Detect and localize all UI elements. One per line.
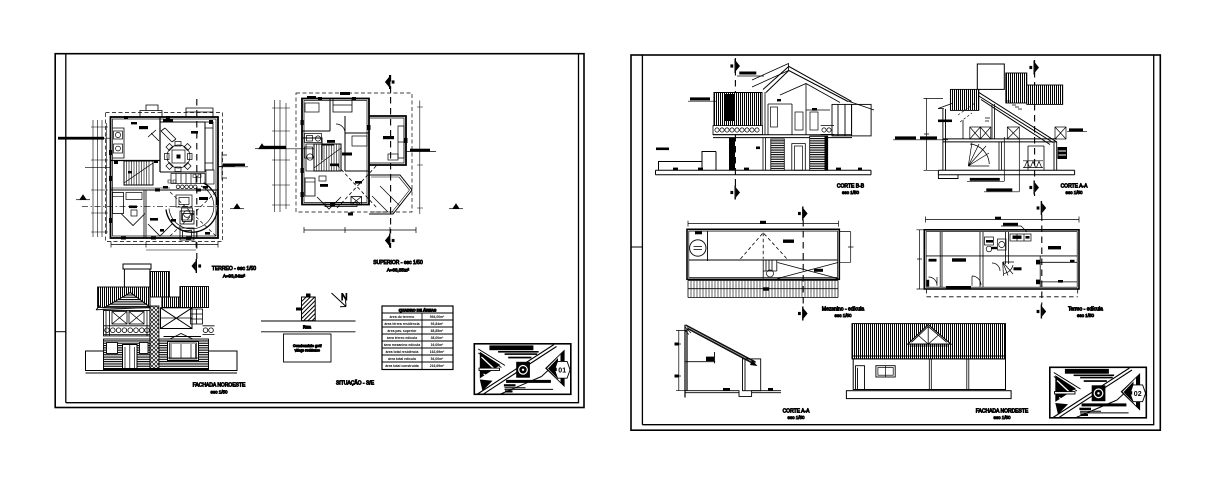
svg-text:área térreo edícula: área térreo edícula [387, 336, 417, 340]
svg-text:village residence: village residence [295, 349, 320, 353]
svg-text:esc 1/50: esc 1/50 [993, 415, 1011, 420]
svg-text:área total edícula: área total edícula [388, 357, 416, 361]
svg-text:área térrea residência: área térrea residência [384, 322, 419, 326]
svg-text:N: N [341, 292, 348, 302]
svg-text:esc 1/50: esc 1/50 [842, 190, 860, 195]
svg-text:Terreo - edícula: Terreo - edícula [1068, 307, 1103, 313]
svg-text:216,69m²: 216,69m² [430, 364, 445, 368]
svg-text:A=68,85m²: A=68,85m² [387, 268, 410, 273]
svg-text:QUADRO DE ÁREAS: QUADRO DE ÁREAS [399, 308, 437, 313]
svg-text:esc 1/50: esc 1/50 [210, 390, 228, 395]
svg-text:Mezanino - edícula: Mezanino - edícula [822, 307, 864, 313]
svg-text:68,85m²: 68,85m² [431, 329, 444, 333]
svg-text:esc 1/50: esc 1/50 [834, 313, 852, 318]
svg-text:FACHADA NORDESTE: FACHADA NORDESTE [976, 409, 1029, 415]
svg-text:esc 1/50: esc 1/50 [1065, 190, 1083, 195]
svg-text:Condomínio golf: Condomínio golf [293, 344, 322, 348]
svg-text:594,00m²: 594,00m² [430, 315, 445, 319]
svg-text:A=93,84m²: A=93,84m² [223, 274, 246, 279]
svg-text:01: 01 [558, 368, 566, 375]
svg-text:162,69m²: 162,69m² [430, 350, 445, 354]
svg-text:esc 1/50: esc 1/50 [787, 415, 805, 420]
svg-text:área pav. superior: área pav. superior [388, 329, 418, 333]
svg-text:16,00m²: 16,00m² [431, 343, 444, 347]
svg-text:CORTE B-B: CORTE B-B [837, 184, 865, 190]
svg-text:esc 1/50: esc 1/50 [1077, 313, 1095, 318]
svg-text:área total residência: área total residência [386, 350, 419, 354]
svg-text:CORTE A-A: CORTE A-A [783, 409, 811, 415]
svg-text:CORTE A-A: CORTE A-A [1061, 184, 1089, 190]
svg-text:SUPERIOR - esc 1/50: SUPERIOR - esc 1/50 [373, 260, 423, 266]
svg-text:área mezanino edícula: área mezanino edícula [384, 343, 420, 347]
svg-text:área total construída: área total construída [385, 364, 418, 368]
svg-text:54,00m²: 54,00m² [431, 357, 444, 361]
svg-text:SITUAÇÃO - S/E: SITUAÇÃO - S/E [336, 380, 375, 387]
svg-text:38,00m²: 38,00m² [431, 336, 444, 340]
svg-text:TERREO - esc 1/50: TERREO - esc 1/50 [212, 266, 256, 272]
svg-text:FACHADA NOROESTE: FACHADA NOROESTE [193, 383, 246, 389]
svg-text:Rua: Rua [303, 324, 312, 329]
svg-text:93,84m²: 93,84m² [431, 322, 444, 326]
svg-text:área do terreno: área do terreno [390, 315, 415, 319]
svg-text:02: 02 [1134, 391, 1142, 398]
